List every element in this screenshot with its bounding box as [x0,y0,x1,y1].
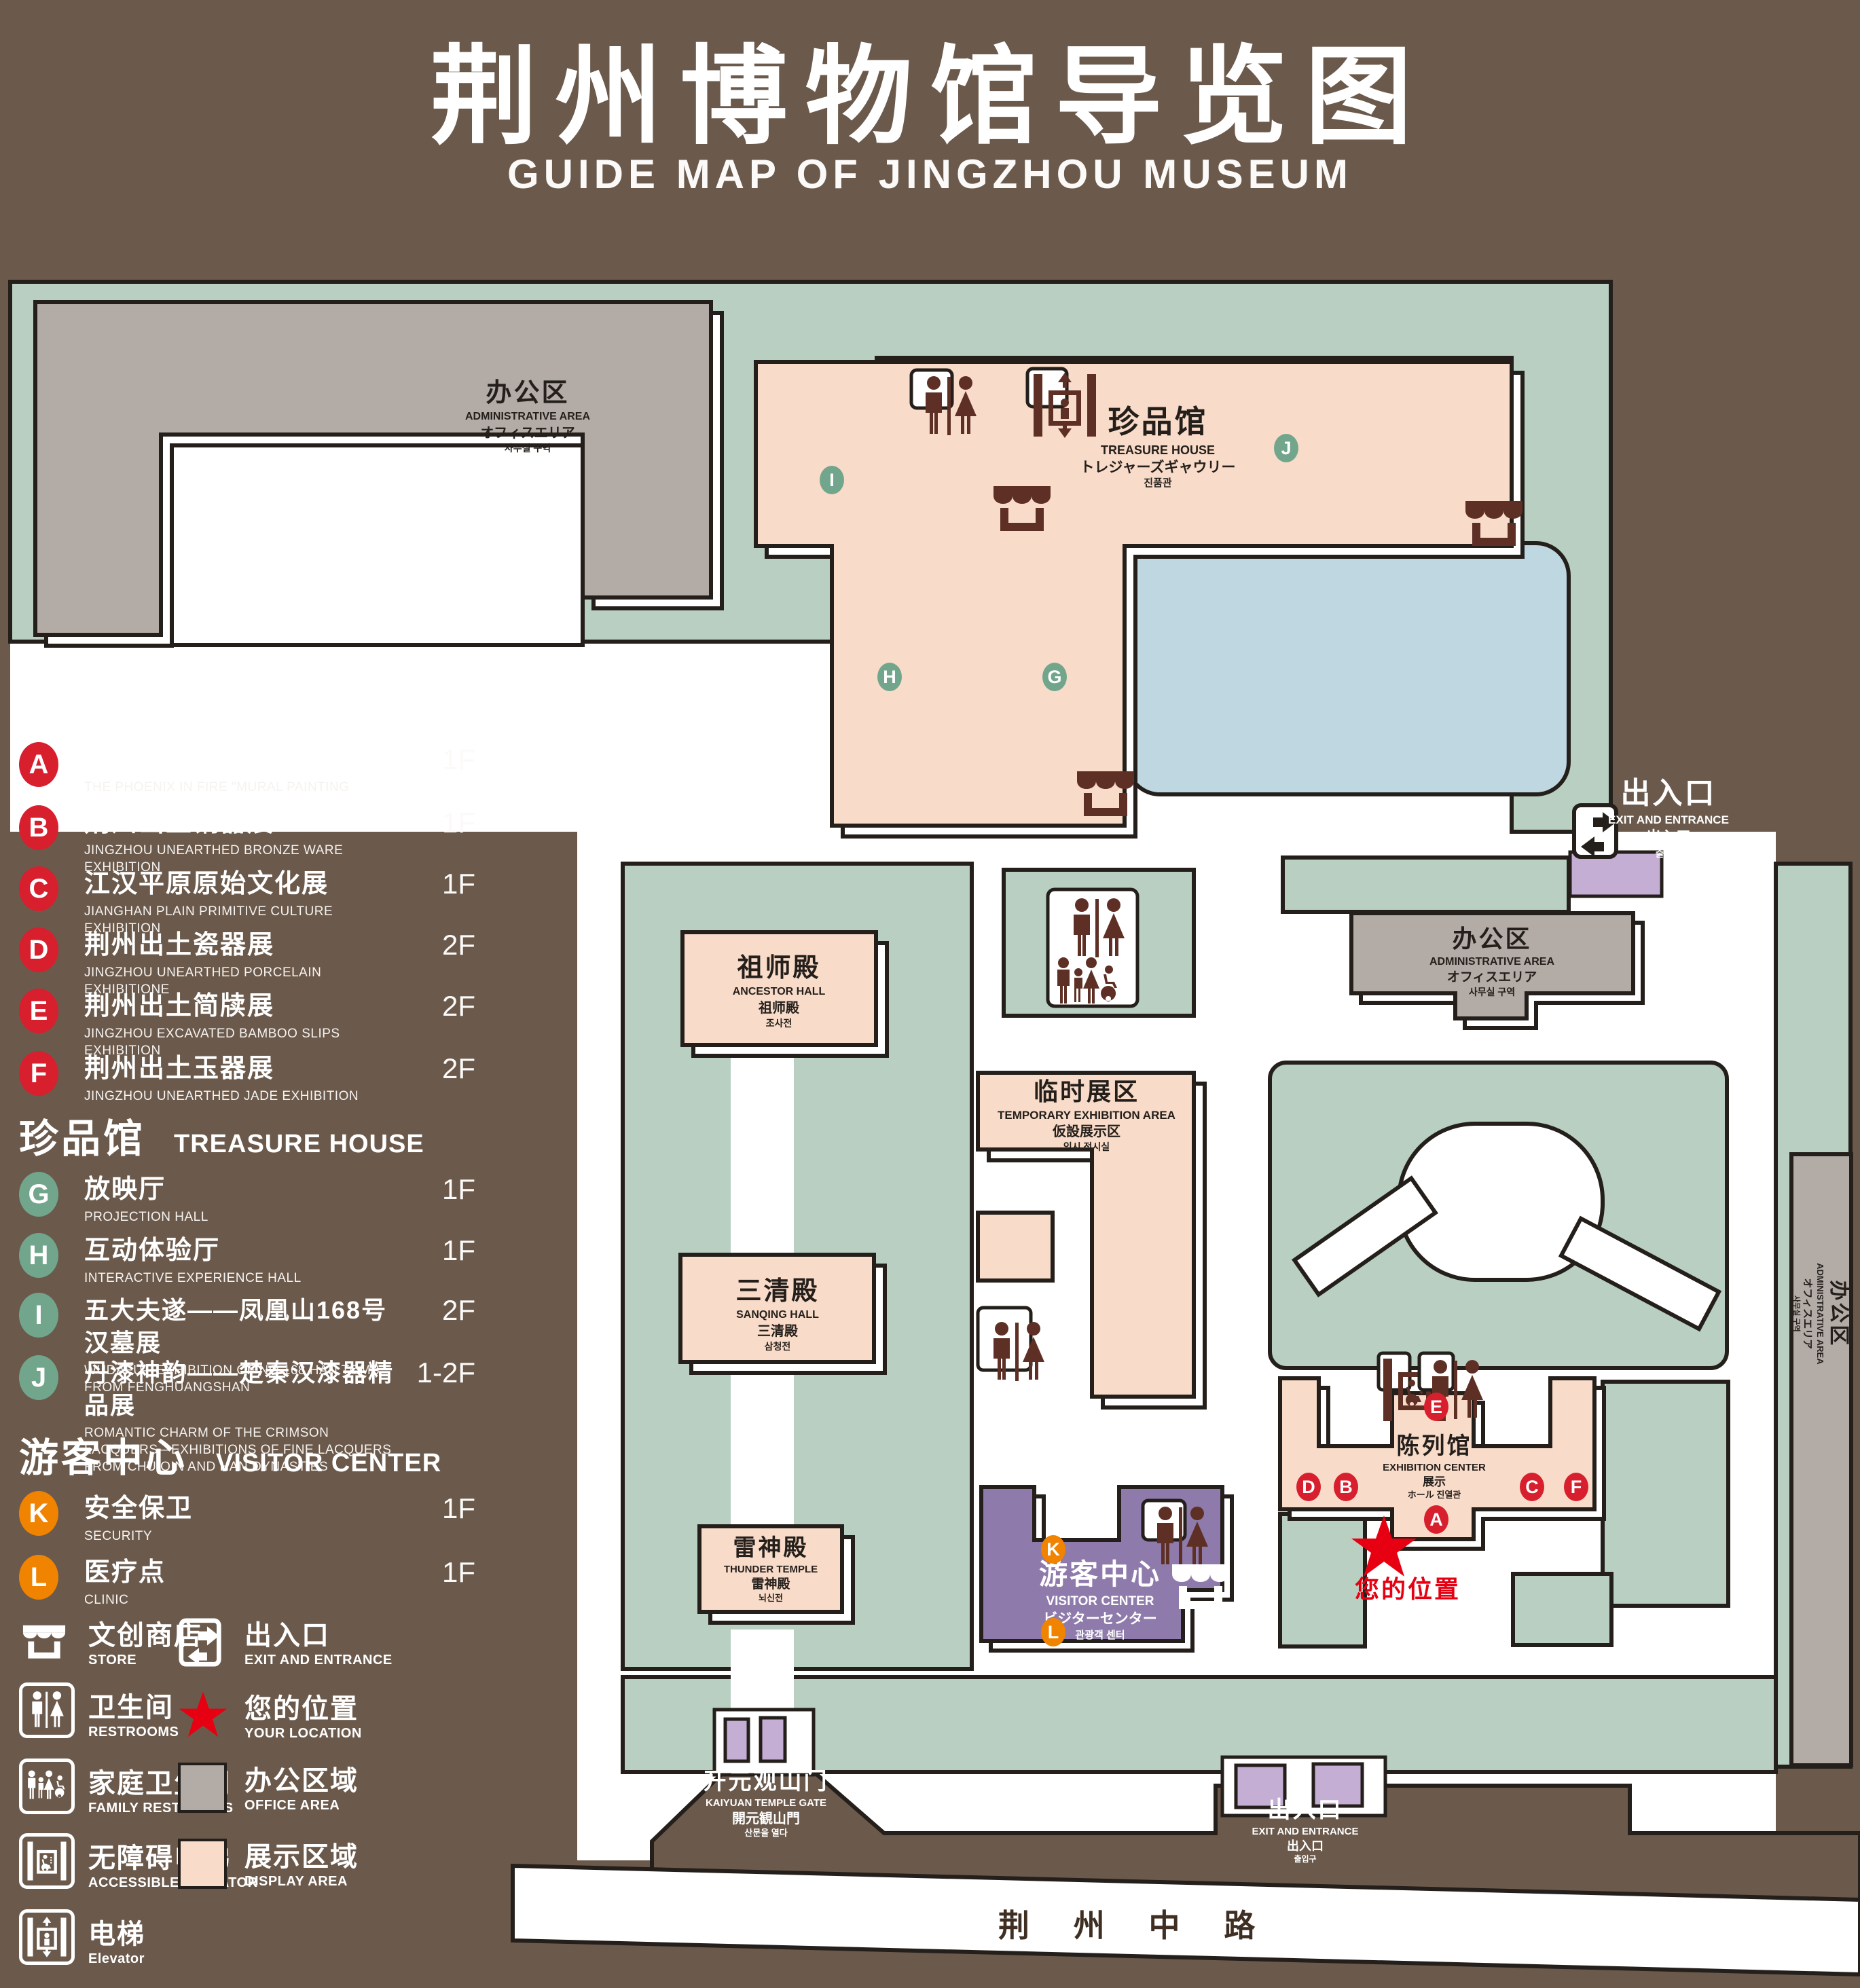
corridor-sanqing-thunder [731,1362,794,1530]
legend-item-l: L 医疗点 CLINIC 1F [19,1556,475,1608]
map-badge-d: D [1296,1473,1321,1501]
legend-item-g: G 放映厅 PROJECTION HALL 1F [19,1173,475,1226]
legend-exit: 出入口 EXIT AND ENTRANCE [178,1617,228,1668]
item-zh: 《火中的凤凰》壁画 [84,743,401,776]
map-badge-k: K [1041,1535,1065,1564]
map-badge-i: I [820,466,844,494]
item-zh: 安全保卫 [84,1492,401,1525]
legend-family-restrooms: 家庭卫生间 FAMILY RESTROOMS [19,1759,75,1814]
badge-j: J [19,1355,58,1400]
family-restrooms-icon [19,1759,75,1814]
map-badge-f: F [1564,1473,1588,1501]
map-badge-l: L [1041,1618,1065,1646]
legend-display-area: 展示区域 DISPLAY AREA [178,1839,227,1889]
restrooms-icon [19,1682,75,1738]
gate-door-right [761,1718,785,1761]
badge-d: D [19,927,58,972]
map-badge-a: A [1424,1505,1448,1534]
legend-item-f: F 荆州出土玉器展 JINGZHOU UNEARTHED JADE EXHIBI… [19,1052,475,1105]
item-floor: 1F [442,1492,475,1525]
icon-en: OFFICE AREA [244,1797,359,1814]
label-road: 荆 州 中 路 [998,1901,1273,1946]
item-floor: 1F [442,1234,475,1267]
item-floor: 1F [442,868,475,900]
item-floor: 2F [442,929,475,961]
icon-zh: 卫生间 [88,1692,179,1723]
legend-item-c: C 江汉平原原始文化展 JIANGHAN PLAIN PRIMITIVE CUL… [19,868,475,937]
item-floor: 2F [442,1052,475,1085]
guide-map-poster: 荆州博物馆导览图 GUIDE MAP OF JINGZHOU MUSEUM 陈列… [0,0,1860,1988]
accessible-elevator-icon [19,1833,75,1889]
map-badge-h: H [877,663,902,691]
item-zh: 江汉平原原始文化展 [84,868,401,900]
item-zh: 医疗点 [84,1556,401,1589]
legend-store: 文创商店 STORE [19,1617,69,1668]
admin-nw-courtyard [161,435,583,645]
item-zh: 荆州出土玉器展 [84,1052,401,1085]
map-badge-g: G [1042,663,1067,691]
item-zh: 荆州出土瓷器展 [84,929,401,961]
badge-g: G [19,1172,58,1217]
legend-item-b: B 荆州出土铜器展 JINGZHOU UNEARTHED BRONZE WARE… [19,807,475,876]
item-zh: 荆州出土铜器展 [84,807,401,839]
item-zh: 荆州出土简牍展 [84,990,401,1023]
legend-accessible-elevator: 无障碍电梯 ACCESSIBLE ELEVATOR [19,1833,75,1889]
icon-zh: 电梯 [88,1919,145,1950]
label-exit-south: 出入口 EXIT AND ENTRANCE 出入口 출입구 [1122,1795,1489,1865]
display-area-swatch [178,1839,227,1889]
exit-icon [178,1617,228,1668]
badge-e: E [19,989,58,1033]
office-area-swatch [178,1763,227,1813]
corridor-ancestor-sanqing [731,1046,794,1257]
poster-subtitle: GUIDE MAP OF JINGZHOU MUSEUM [0,151,1860,198]
gate-door-left [725,1719,748,1761]
store-kiosk [978,1213,1053,1281]
item-floor: 2F [442,990,475,1023]
store-icon [19,1617,69,1668]
icon-zh: 您的位置 [244,1693,362,1725]
badge-a: A [19,742,58,787]
icon-zh: 无障碍电梯 [88,1843,258,1874]
legend-elevator: 电梯 Elevator [19,1909,75,1965]
icon-zh: 出入口 [244,1620,393,1651]
item-zh: 放映厅 [84,1173,401,1206]
label-exit-northeast: 出入口 EXIT AND ENTRANCE 出入口 출입구 [1485,774,1852,860]
item-en: THE PHOENIX IN FIRE "MURAL PAINTING [84,779,401,796]
item-en: SECURITY [84,1528,401,1545]
label-ancestor-hall: 祖师殿 ANCESTOR HALL 祖师殿 조사전 [596,952,962,1029]
icon-zh: 办公区域 [244,1765,359,1797]
badge-i: I [19,1293,58,1338]
label-admin-east: 办公区 ADMINISTRATIVE AREA オフィスエリア 사무실 구역 [1309,923,1675,998]
courtyard-east-of-exhibition [1603,1382,1728,1606]
label-admin-southeast: 办公区 ADMINISTRATIVE AREA オフィスエリア 사무실 구역 [1791,1110,1852,1517]
icon-en: EXIT AND ENTRANCE [244,1651,393,1669]
icon-en: DISPLAY AREA [244,1873,359,1890]
legend-office-area: 办公区域 OFFICE AREA [178,1763,227,1813]
item-en: CLINIC [84,1591,401,1608]
legend-item-e: G E 荆州出土简牍展 JINGZHOU EXCAVATED BAMBOO SL… [19,990,475,1059]
legend-section-exhibition-center: 陈列馆EXHIBITION CENTER [19,679,446,736]
your-location-star-icon [178,1691,228,1741]
icon-en: YOUR LOCATION [244,1725,362,1742]
legend-item-k: K 安全保卫 SECURITY 1F [19,1492,475,1545]
section-title-zh: 珍品馆 [19,1117,145,1161]
legend-restrooms: 卫生间 RESTROOMS [19,1682,75,1738]
section-title-zh: 游客中心 [19,1436,187,1480]
section-title-en: TREASURE HOUSE [174,1130,424,1158]
badge-f: F [19,1051,58,1096]
map-badge-b: B [1334,1473,1358,1501]
item-floor: 1F [442,743,475,776]
courtyard-east-strip [1283,858,1569,912]
item-floor: 1-2F [417,1357,475,1389]
legend-your-location: 您的位置 YOUR LOCATION [178,1691,228,1741]
item-zh: 互动体验厅 [84,1234,401,1267]
label-sanqing-hall: 三清殿 SANQING HALL 三清殿 삼청전 [594,1275,961,1352]
label-thunder-temple: 雷神殿 THUNDER TEMPLE 雷神殿 뇌신전 [587,1533,954,1604]
item-floor: 2F [442,1294,475,1327]
section-title-zh: 陈列馆 [19,689,145,733]
legend-section-visitor-center: 游客中心VISITOR CENTER [19,1426,441,1483]
item-floor: 1F [442,1173,475,1206]
label-your-location: 您的位置 [1355,1570,1461,1605]
item-floor: 1F [442,1556,475,1589]
legend-section-treasure-house: 珍品馆TREASURE HOUSE [19,1107,424,1164]
legend-item-h: H 互动体验厅 INTERACTIVE EXPERIENCE HALL 1F [19,1234,475,1287]
badge-h: H [19,1233,58,1278]
label-temporary-exhibition: 临时展区 TEMPORARY EXHIBITION AREA 仮設展示区 임시 … [903,1076,1270,1153]
map-badge-e: E [1424,1393,1448,1421]
legend-item-d: D 荆州出土瓷器展 JINGZHOU UNEARTHED PORCELAIN E… [19,929,475,998]
elevator-icon [19,1909,75,1965]
legend-item-a: A 《火中的凤凰》壁画 THE PHOENIX IN FIRE "MURAL P… [19,743,475,796]
icon-en: ACCESSIBLE ELEVATOR [88,1874,258,1892]
section-title-en: VISITOR CENTER [216,1449,441,1477]
icon-en: Elevator [88,1950,145,1968]
item-zh: 丹漆神韵——楚秦汉漆器精品展 [84,1357,401,1422]
map-badge-j: J [1274,434,1298,462]
badge-l: L [19,1555,58,1600]
label-admin-northwest: 办公区 ADMINISTRATIVE AREA オフィスエリア 사무실 구역 [344,377,711,454]
item-en: PROJECTION HALL [84,1209,401,1226]
pond [1127,543,1569,794]
icon-zh: 展示区域 [244,1841,359,1873]
item-floor: 1F [442,807,475,839]
label-kaiyuan-gate: 开元观山门 KAIYUAN TEMPLE GATE 開元観山門 산문을 열다 [583,1767,949,1839]
poster-title: 荆州博物馆导览图 [0,10,1860,165]
item-en: JINGZHOU UNEARTHED JADE EXHIBITION [84,1088,401,1105]
badge-c: C [19,866,58,911]
item-zh: 五大夫遂——凤凰山168号汉墓展 [84,1294,401,1359]
label-visitor-center: 游客中心 VISITOR CENTER ビジターセンター 관광객 센터 [917,1556,1283,1642]
map-badge-c: C [1520,1473,1544,1501]
icon-en: RESTROOMS [88,1723,179,1741]
badge-b: B [19,805,58,850]
section-title-en: EXHIBITION CENTER [174,702,446,731]
badge-k: K [19,1491,58,1536]
courtyard-south-of-exhibition-right [1513,1574,1611,1645]
item-en: INTERACTIVE EXPERIENCE HALL [84,1270,401,1287]
courtyard-south-of-exhibition-left [1280,1514,1365,1646]
